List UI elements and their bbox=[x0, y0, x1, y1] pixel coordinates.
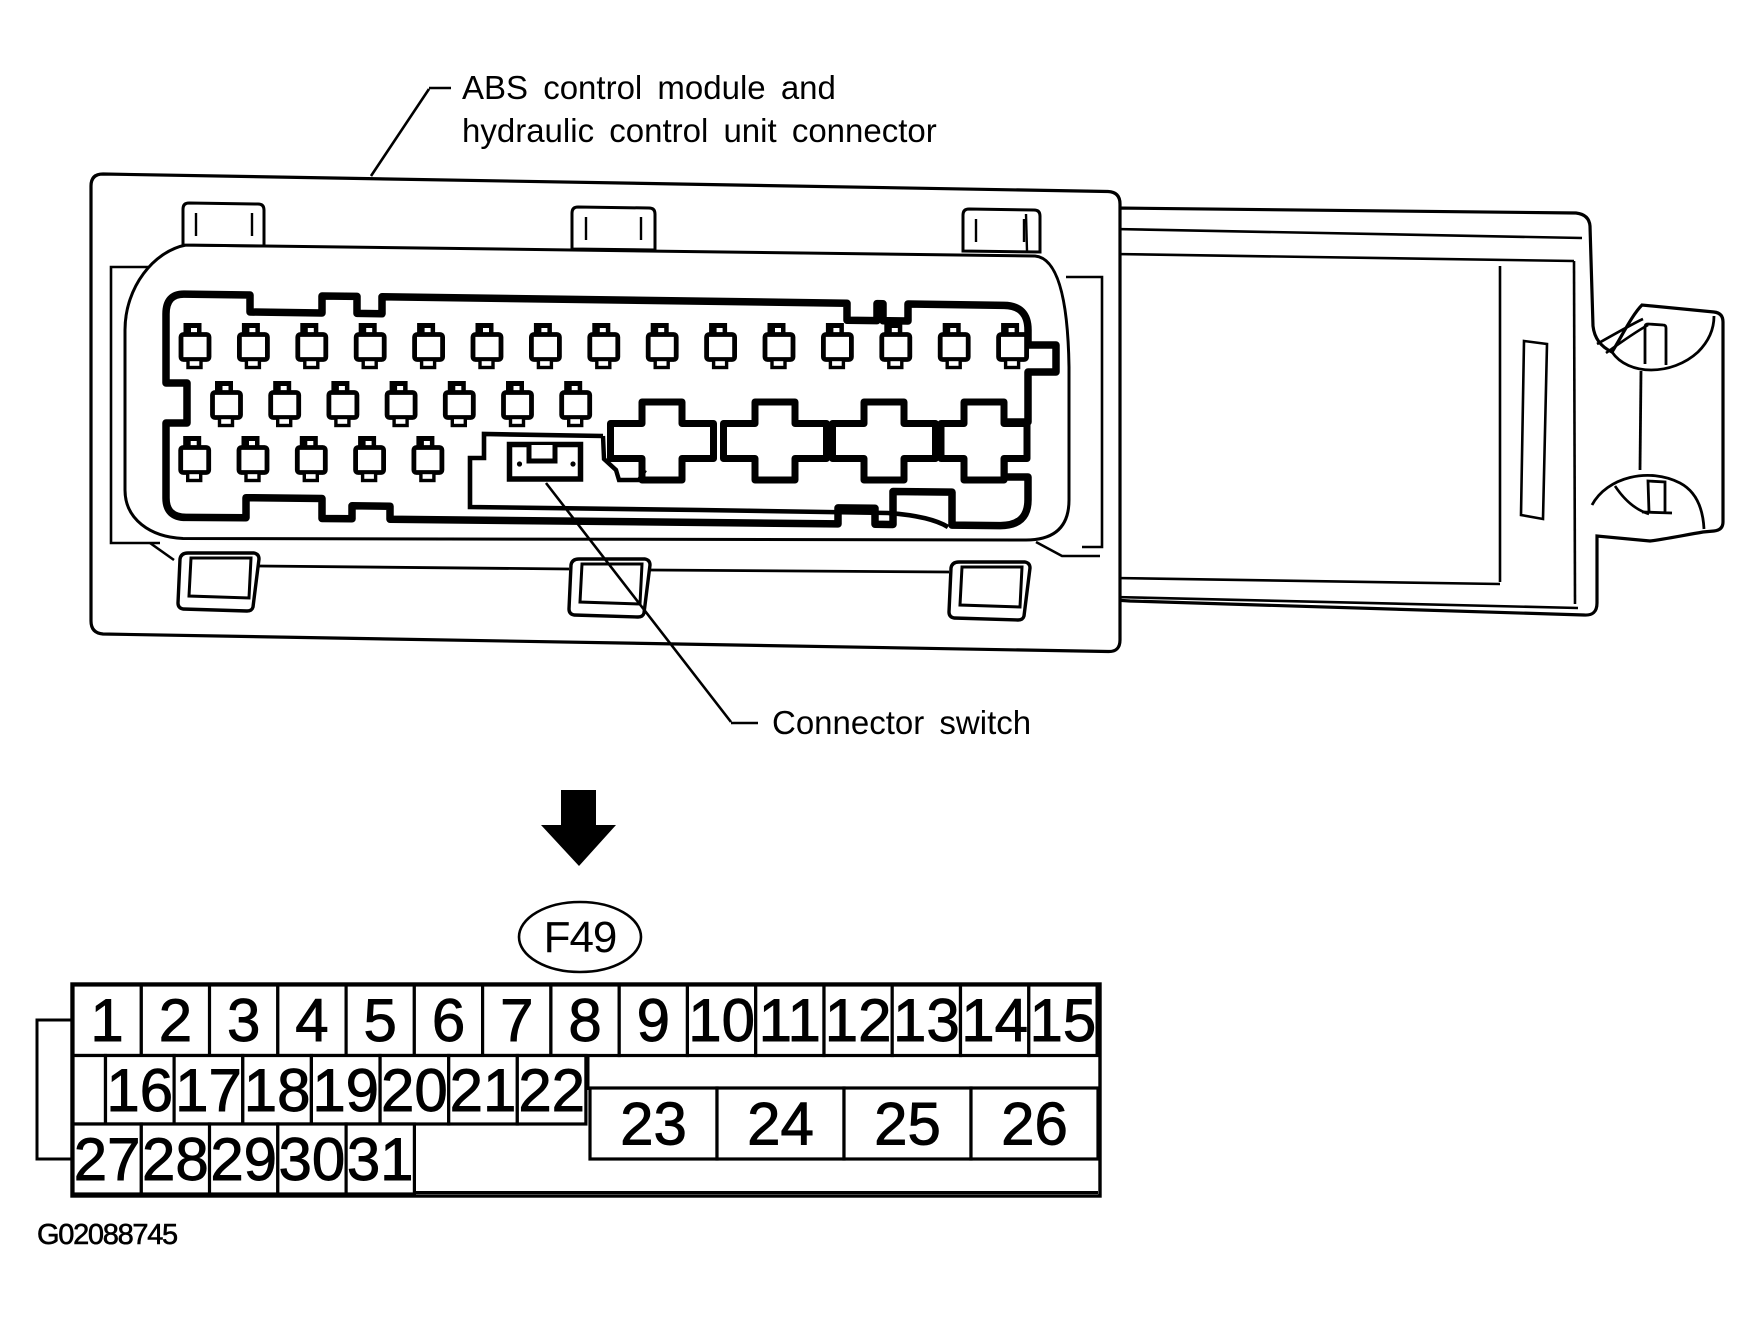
svg-text:13: 13 bbox=[893, 987, 960, 1054]
svg-text:2: 2 bbox=[159, 987, 192, 1054]
svg-text:15: 15 bbox=[1030, 987, 1097, 1054]
svg-text:22: 22 bbox=[518, 1057, 585, 1124]
svg-text:25: 25 bbox=[874, 1091, 941, 1158]
svg-text:31: 31 bbox=[347, 1126, 414, 1193]
svg-text:7: 7 bbox=[500, 987, 533, 1054]
svg-text:F49: F49 bbox=[544, 913, 617, 962]
svg-text:23: 23 bbox=[620, 1091, 687, 1158]
svg-text:11: 11 bbox=[759, 987, 821, 1054]
svg-text:3: 3 bbox=[227, 987, 260, 1054]
svg-text:ABS control module and: ABS control module and bbox=[462, 69, 836, 106]
svg-text:24: 24 bbox=[747, 1091, 814, 1158]
svg-text:19: 19 bbox=[312, 1057, 379, 1124]
svg-text:20: 20 bbox=[381, 1057, 448, 1124]
svg-text:26: 26 bbox=[1001, 1091, 1068, 1158]
svg-text:9: 9 bbox=[637, 987, 670, 1054]
svg-text:5: 5 bbox=[364, 987, 397, 1054]
svg-text:10: 10 bbox=[688, 987, 755, 1054]
svg-text:29: 29 bbox=[210, 1126, 277, 1193]
svg-text:30: 30 bbox=[279, 1126, 346, 1193]
svg-text:12: 12 bbox=[825, 987, 892, 1054]
svg-text:21: 21 bbox=[450, 1057, 517, 1124]
svg-text:4: 4 bbox=[295, 987, 328, 1054]
svg-text:hydraulic control unit connect: hydraulic control unit connector bbox=[462, 112, 937, 149]
svg-text:1: 1 bbox=[90, 987, 123, 1054]
svg-text:16: 16 bbox=[106, 1057, 173, 1124]
svg-text:17: 17 bbox=[175, 1057, 242, 1124]
svg-text:27: 27 bbox=[74, 1126, 141, 1193]
svg-text:G02088745: G02088745 bbox=[37, 1219, 177, 1251]
svg-text:6: 6 bbox=[432, 987, 465, 1054]
svg-text:Connector switch: Connector switch bbox=[772, 704, 1031, 741]
svg-text:18: 18 bbox=[244, 1057, 311, 1124]
svg-text:8: 8 bbox=[568, 987, 601, 1054]
svg-text:28: 28 bbox=[142, 1126, 209, 1193]
svg-text:14: 14 bbox=[961, 987, 1028, 1054]
